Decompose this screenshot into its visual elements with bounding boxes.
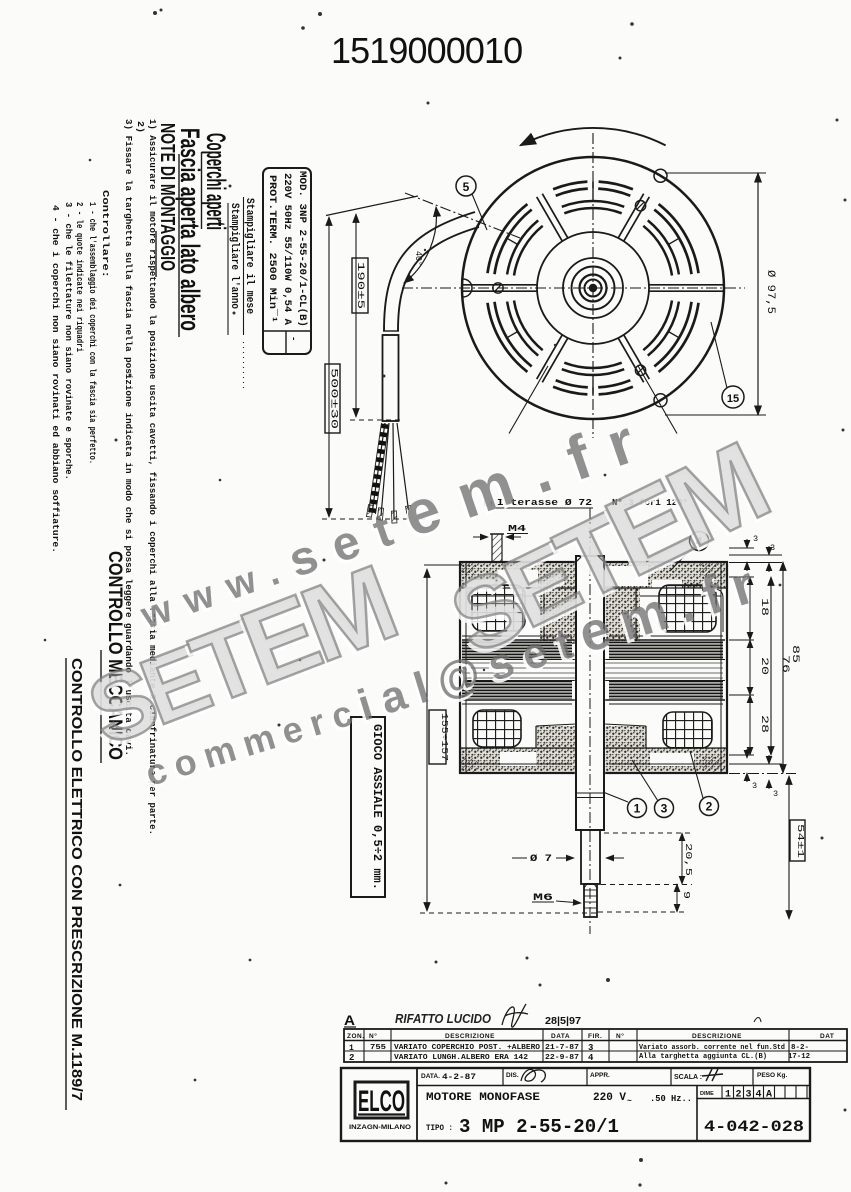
svg-text:A: A (766, 1090, 772, 1101)
svg-text:9: 9 (681, 891, 692, 899)
svg-text:15: 15 (727, 393, 739, 405)
svg-text:A: A (344, 1012, 355, 1028)
svg-text:Stampigliare il mese: Stampigliare il mese (243, 198, 255, 314)
svg-text:PROT.TERM. 2500 Min¯¹: PROT.TERM. 2500 Min¯¹ (266, 175, 279, 323)
svg-text:22-9-87: 22-9-87 (545, 1054, 579, 1062)
svg-text:FIR.: FIR. (588, 1033, 602, 1040)
svg-text:76: 76 (779, 655, 790, 673)
svg-text:3: 3 (588, 1043, 593, 1053)
svg-text:8-2-: 8-2- (791, 1044, 809, 1052)
svg-text:DIS.: DIS. (506, 1072, 519, 1079)
svg-text:2: 2 (349, 1053, 354, 1063)
svg-text:Controllare:: Controllare: (100, 190, 111, 278)
svg-text:N°: N° (369, 1032, 377, 1040)
svg-text:MOTORE MONOFASE: MOTORE MONOFASE (426, 1092, 540, 1104)
svg-text:5: 5 (463, 180, 470, 194)
svg-text:TIPO :: TIPO : (426, 1123, 453, 1133)
svg-text:DAT: DAT (820, 1033, 834, 1040)
svg-text:21-7-87: 21-7-87 (545, 1044, 579, 1052)
svg-text:17-12: 17-12 (788, 1053, 810, 1061)
svg-text:ZON.: ZON. (347, 1033, 365, 1040)
svg-text:20: 20 (758, 657, 769, 675)
svg-text:85: 85 (789, 645, 800, 663)
svg-text:Ø 7: Ø 7 (530, 853, 552, 865)
svg-text:~: ~ (627, 1097, 632, 1106)
svg-text:DATA: DATA (551, 1033, 570, 1040)
svg-text:2 - le quote indicate nei riqu: 2 - le quote indicate nei riquadri (74, 202, 84, 352)
svg-text:APPR.: APPR. (590, 1072, 610, 1079)
svg-text:3 MP 2-55-20/1: 3 MP 2-55-20/1 (459, 1116, 619, 1138)
svg-text:.50 Hz..: .50 Hz.. (650, 1093, 692, 1104)
svg-text:2: 2 (736, 1090, 742, 1101)
svg-text:20,5: 20,5 (683, 843, 694, 876)
svg-text:155÷157: 155÷157 (439, 713, 450, 761)
svg-text:4-2-87: 4-2-87 (442, 1072, 476, 1082)
svg-text:4: 4 (588, 1053, 594, 1063)
svg-text:4 - che i coperchi non siano r: 4 - che i coperchi non siano rovinati ed… (50, 205, 60, 553)
svg-text:755: 755 (370, 1044, 387, 1052)
svg-text:54±1: 54±1 (795, 824, 806, 858)
svg-text:Ø 97,5: Ø 97,5 (764, 270, 776, 314)
svg-text:N°: N° (616, 1032, 624, 1040)
svg-text:RIFATTO LUCIDO: RIFATTO LUCIDO (395, 1012, 491, 1026)
svg-text:28|5|97: 28|5|97 (545, 1016, 581, 1027)
svg-text:DATA.: DATA. (421, 1073, 440, 1080)
svg-text:4-042-028: 4-042-028 (704, 1118, 804, 1136)
svg-text:Stampigliare l'anno: Stampigliare l'anno (228, 203, 240, 309)
svg-text:DESCRIZIONE: DESCRIZIONE (692, 1033, 742, 1040)
svg-text:DESCRIZIONE: DESCRIZIONE (445, 1033, 495, 1040)
svg-text:VARIATO LUNGH.ALBERO ERA 142: VARIATO LUNGH.ALBERO ERA 142 (394, 1054, 529, 1062)
svg-text:Variato assorb. corrente nel f: Variato assorb. corrente nel fun.Std (639, 1044, 785, 1052)
svg-text:220 V: 220 V (593, 1092, 626, 1104)
svg-text:3: 3 (752, 781, 757, 791)
svg-text:2: 2 (706, 800, 713, 814)
svg-text:MOD. 3NP 2-55-20/1-CL(B): MOD. 3NP 2-55-20/1-CL(B) (296, 171, 308, 327)
svg-text:3: 3 (661, 802, 668, 816)
svg-text:GIOCO ASSIALE 0,5÷2 mm.: GIOCO ASSIALE 0,5÷2 mm. (370, 724, 383, 890)
svg-text:1 - che l'assemblaggio dei cop: 1 - che l'assemblaggio dei coperchi con … (87, 202, 97, 464)
svg-text:190±5: 190±5 (354, 262, 366, 309)
svg-text:SCALA :: SCALA : (674, 1074, 702, 1081)
svg-text:DIME: DIME (700, 1091, 714, 1097)
svg-text:3: 3 (746, 1090, 752, 1101)
svg-text:220V 50Hz 55/110W 0,54 A: 220V 50Hz 55/110W 0,54 A (281, 173, 293, 326)
svg-text:28: 28 (758, 715, 769, 733)
svg-text:1: 1 (349, 1044, 354, 1053)
svg-text:2): 2) (135, 121, 146, 133)
svg-text:4: 4 (756, 1090, 762, 1101)
svg-text:Alla targhetta aggiunta CL.(B): Alla targhetta aggiunta CL.(B) (639, 1053, 767, 1061)
svg-text:ELCO: ELCO (358, 1085, 405, 1118)
svg-text:3: 3 (773, 789, 778, 799)
svg-text:VARIATO COPERCHIO POST. +ALBER: VARIATO COPERCHIO POST. +ALBERO (394, 1044, 541, 1052)
svg-text:1: 1 (725, 1090, 731, 1101)
svg-text:1: 1 (634, 802, 641, 816)
svg-text:-: - (288, 336, 298, 341)
svg-text:PESO Kg.: PESO Kg. (757, 1072, 788, 1079)
svg-text:500±30: 500±30 (328, 368, 340, 429)
svg-text:NOTE DI MONTAGGIO: NOTE DI MONTAGGIO (156, 123, 178, 271)
svg-text:3 - che le filettature non sia: 3 - che le filettature non siano rovinat… (63, 202, 73, 480)
svg-text:3: 3 (770, 543, 775, 553)
svg-text:INZAGN-MILANO: INZAGN-MILANO (349, 1124, 411, 1131)
svg-text:CONTROLLO ELETTRICO CON PRESCR: CONTROLLO ELETTRICO CON PRESCRIZIONE M.1… (68, 658, 85, 1101)
